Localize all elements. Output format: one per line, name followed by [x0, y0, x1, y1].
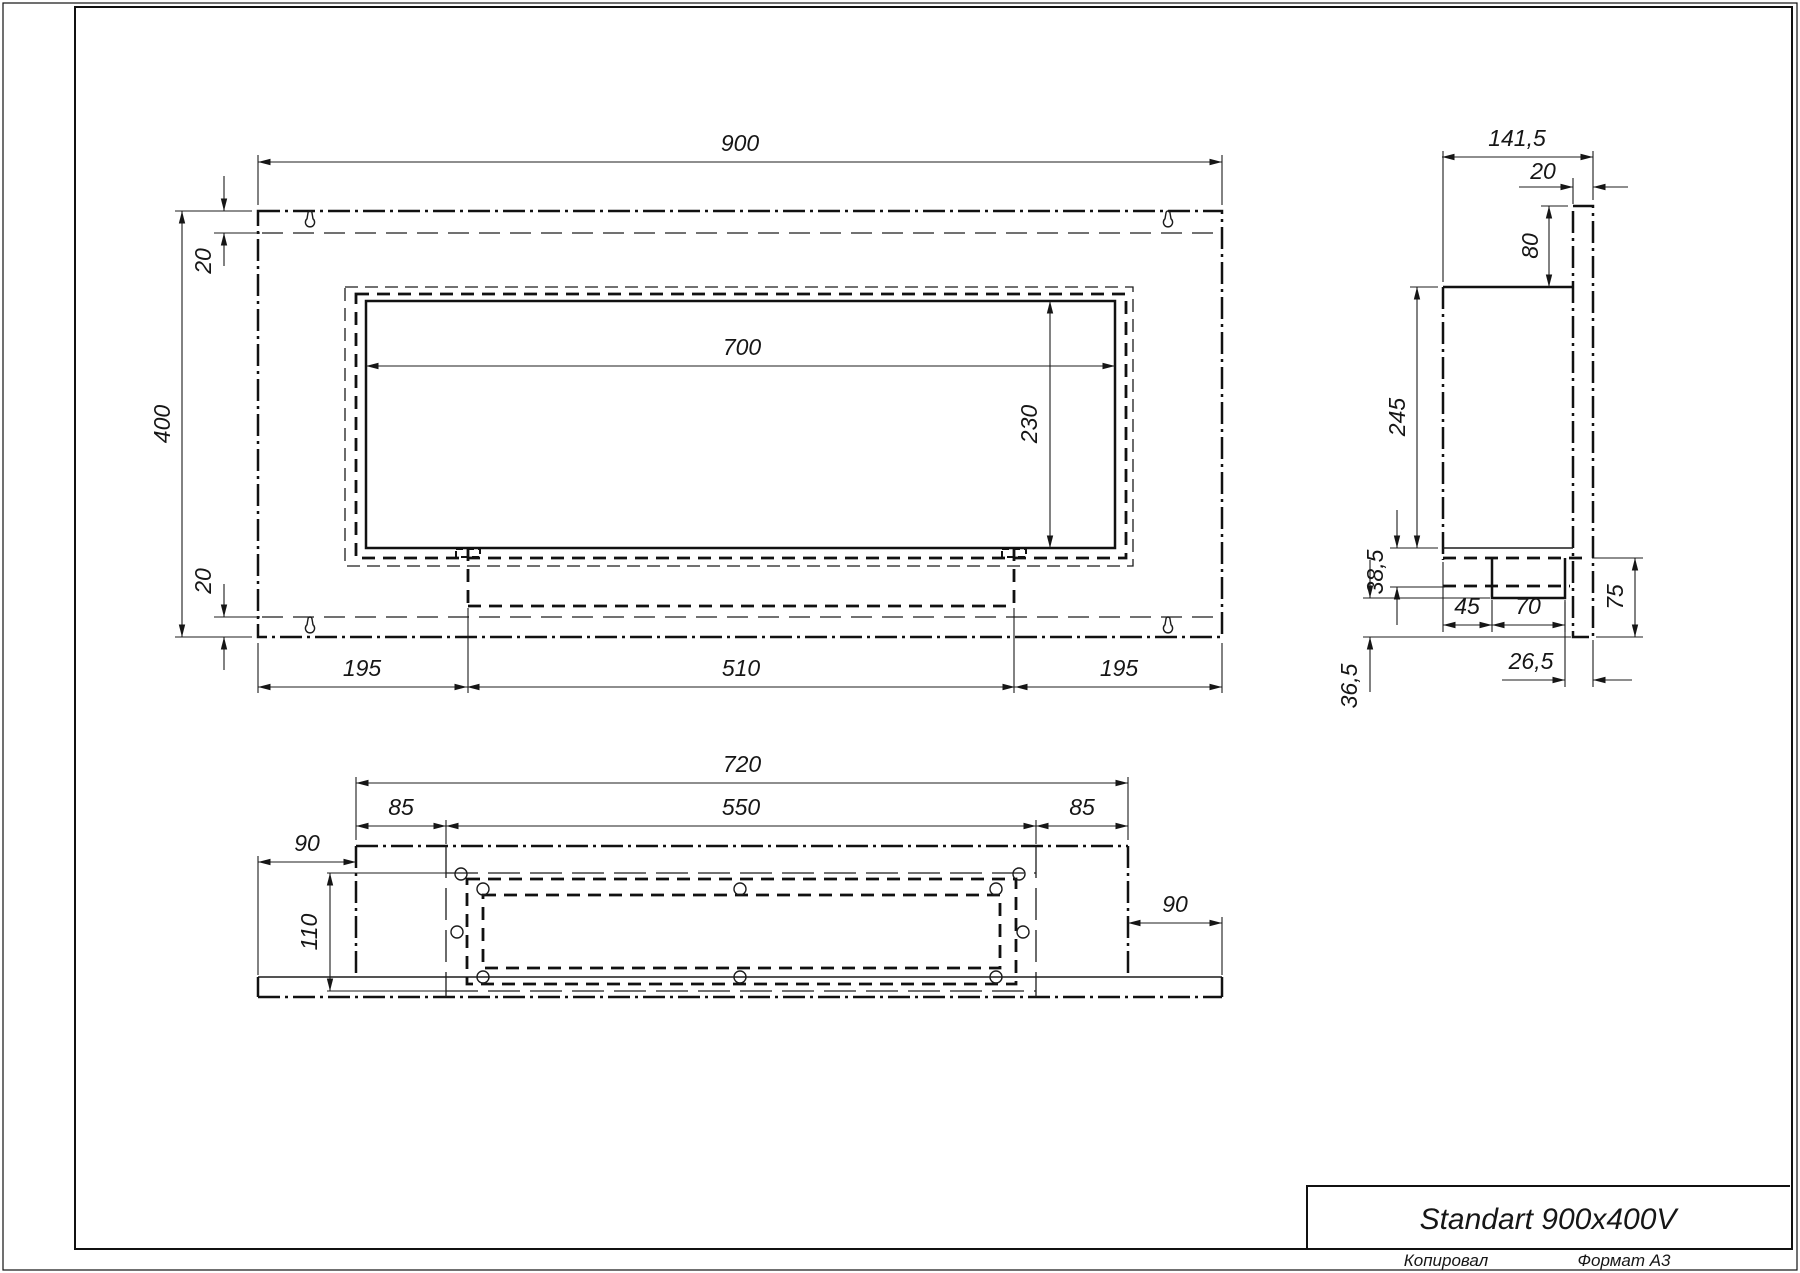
dim-label-45: 45 — [1454, 593, 1480, 619]
dim-label-700: 700 — [723, 334, 762, 360]
bottom-dimensions: 720 85 550 85 90 110 — [258, 751, 1222, 991]
dim-141-5: 141,5 — [1442, 125, 1593, 157]
bottom-screw-holes — [451, 868, 1029, 983]
front-view: 900 400 20 20 700 230 — [149, 130, 1222, 693]
dim-label-70: 70 — [1515, 593, 1541, 619]
side-outline — [1443, 206, 1593, 637]
dim-720: 720 — [356, 751, 1128, 783]
side-dimensions: 141,5 20 80 245 38,5 45 — [1336, 125, 1635, 708]
keyhole-icon — [305, 617, 314, 633]
dim-245: 245 — [1384, 287, 1417, 548]
keyhole-icon — [305, 211, 314, 227]
screw-hole — [1017, 926, 1029, 938]
dim-label-20-bottom: 20 — [190, 568, 216, 595]
dim-label-80: 80 — [1517, 233, 1543, 259]
dim-label-26-5: 26,5 — [1508, 648, 1554, 674]
dim-900: 900 — [258, 130, 1222, 162]
dim-label-110: 110 — [296, 913, 322, 950]
dim-26-5: 26,5 — [1502, 648, 1632, 680]
dim-label-90-left: 90 — [294, 830, 320, 856]
dim-85-right: 85 — [1036, 794, 1128, 826]
bottom-outline — [258, 846, 1222, 997]
screw-hole — [477, 883, 489, 895]
side-view: 141,5 20 80 245 38,5 45 — [1336, 125, 1643, 708]
title-block: Standart 900x400V Копировал Формат А3 — [1307, 1186, 1790, 1270]
inner-frame — [75, 7, 1792, 1249]
keyhole-icon — [1163, 211, 1172, 227]
drawing-sheet: 900 400 20 20 700 230 — [0, 0, 1800, 1273]
dim-label-90-right: 90 — [1162, 891, 1188, 917]
dim-label-85-right: 85 — [1069, 794, 1095, 820]
dim-230: 230 — [1016, 301, 1050, 548]
footer-copied-label: Копировал — [1404, 1251, 1489, 1270]
screw-hole — [455, 868, 467, 880]
dim-label-20-panel: 20 — [1529, 158, 1556, 184]
front-extension-lines — [175, 155, 1222, 693]
keyhole-icon — [1163, 617, 1172, 633]
dim-label-550: 550 — [722, 794, 761, 820]
dim-label-20-top: 20 — [190, 248, 216, 275]
footer-format-label: Формат А3 — [1577, 1251, 1671, 1270]
dim-90-left: 90 — [258, 830, 356, 862]
dim-110: 110 — [296, 873, 330, 991]
dim-20-bottom: 20 — [190, 568, 224, 670]
dim-label-195-right: 195 — [1100, 655, 1139, 681]
title-block-product-name: Standart 900x400V — [1420, 1203, 1680, 1236]
dim-label-38-5: 38,5 — [1362, 549, 1388, 594]
front-outline — [258, 211, 1222, 637]
dim-85-left: 85 — [356, 794, 446, 826]
dim-label-195-left: 195 — [343, 655, 382, 681]
dim-label-720: 720 — [723, 751, 762, 777]
dim-90-right: 90 — [1128, 891, 1222, 923]
screw-hole — [1013, 868, 1025, 880]
screw-hole — [734, 883, 746, 895]
dim-label-510: 510 — [722, 655, 761, 681]
front-opening — [345, 287, 1133, 566]
bottom-slot-hidden — [446, 846, 1036, 997]
dim-195-right: 195 — [1015, 655, 1222, 687]
dim-700: 700 — [366, 334, 1115, 366]
dim-label-85-left: 85 — [388, 794, 414, 820]
dim-38-5: 38,5 — [1362, 510, 1397, 625]
dim-label-245: 245 — [1384, 398, 1410, 438]
dim-550: 550 — [446, 794, 1036, 826]
dim-400: 400 — [149, 211, 182, 637]
dim-510: 510 — [467, 655, 1015, 687]
screw-hole — [990, 883, 1002, 895]
dim-195-left: 195 — [258, 655, 467, 687]
dim-label-900: 900 — [721, 130, 760, 156]
dim-20-top: 20 — [190, 176, 224, 275]
dim-label-141-5: 141,5 — [1488, 125, 1546, 151]
dim-label-400: 400 — [149, 405, 175, 444]
dim-80: 80 — [1517, 206, 1549, 287]
side-burner-box — [1492, 558, 1565, 598]
dim-label-75: 75 — [1602, 584, 1628, 610]
bottom-view: 720 85 550 85 90 110 — [258, 751, 1222, 997]
front-dimensions: 900 400 20 20 700 230 — [149, 130, 1222, 687]
dim-label-230: 230 — [1016, 405, 1042, 445]
dim-label-36-5: 36,5 — [1336, 663, 1362, 708]
screw-hole — [451, 926, 463, 938]
dim-75: 75 — [1602, 558, 1635, 637]
